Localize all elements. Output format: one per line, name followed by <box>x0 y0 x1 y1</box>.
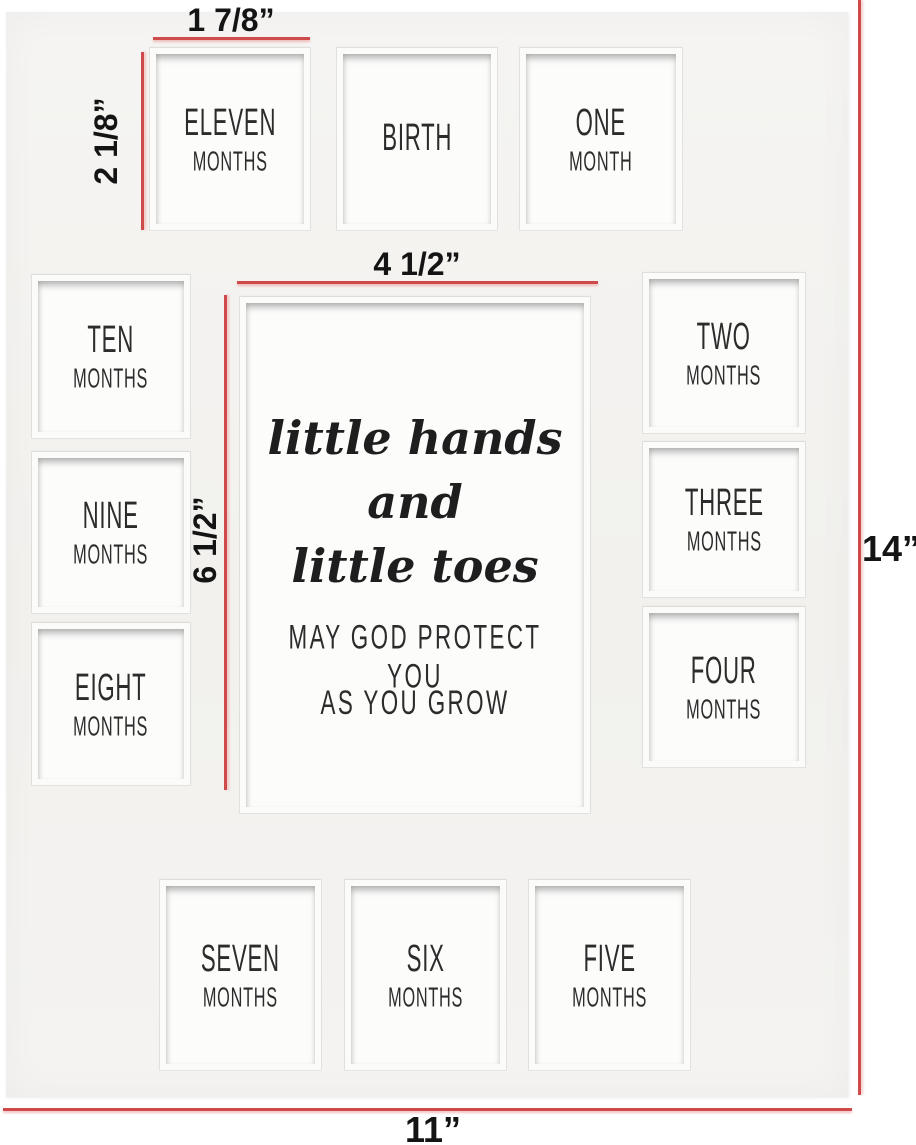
opening-label: TWO MONTHS <box>687 316 762 390</box>
opening-label: ELEVEN MONTHS <box>184 102 276 176</box>
photo-opening-nine-months: NINE MONTHS <box>32 452 190 613</box>
dimension-label-center-opening-height: 6 1/2” <box>185 455 225 625</box>
opening-label-line2: MONTHS <box>184 146 276 176</box>
opening-label-line1: THREE <box>685 482 764 525</box>
dimension-label-overall-height: 14” <box>862 528 916 570</box>
photo-opening-three-months: THREE MONTHS <box>643 442 805 597</box>
opening-label-line1: SEVEN <box>201 938 280 981</box>
opening-label-line2: MONTHS <box>572 982 647 1012</box>
opening-label-line2: MONTHS <box>388 982 463 1012</box>
photo-opening-ten-months: TEN MONTHS <box>32 275 190 438</box>
milestone-photo-mat-diagram: ELEVEN MONTHS BIRTH ONE MONTH TEN MONTHS… <box>0 0 916 1145</box>
opening-label: ONE MONTH <box>569 102 632 176</box>
photo-opening-seven-months: SEVEN MONTHS <box>160 880 321 1070</box>
opening-label-line1: ELEVEN <box>184 102 276 145</box>
photo-opening-five-months: FIVE MONTHS <box>529 880 690 1070</box>
dimension-label-center-opening-width: 4 1/2” <box>337 246 497 283</box>
opening-label-line2: MONTHS <box>74 711 149 741</box>
dimension-label-small-opening-height: 2 1/8” <box>86 56 126 226</box>
opening-label: TEN MONTHS <box>74 319 149 393</box>
opening-label: FOUR MONTHS <box>687 650 762 724</box>
opening-label-line1: EIGHT <box>74 667 149 710</box>
opening-label: SIX MONTHS <box>388 938 463 1012</box>
opening-label-line1: FIVE <box>572 938 647 981</box>
dimension-line-overall-height <box>858 0 861 1095</box>
dimension-line-small-opening-height <box>141 52 144 230</box>
opening-label: FIVE MONTHS <box>572 938 647 1012</box>
photo-opening-eleven-months: ELEVEN MONTHS <box>150 48 310 230</box>
quote-script-line2: and <box>246 475 584 529</box>
photo-opening-four-months: FOUR MONTHS <box>643 607 805 767</box>
quote-script-line3: little toes <box>246 539 584 593</box>
opening-label-line2: MONTHS <box>74 363 149 393</box>
opening-label: SEVEN MONTHS <box>201 938 280 1012</box>
quote-caption-line2: AS YOU GROW <box>280 683 550 722</box>
opening-label-line2: MONTHS <box>687 360 762 390</box>
opening-label-line1: FOUR <box>687 650 762 693</box>
opening-label-line1: ONE <box>569 102 632 145</box>
opening-label: NINE MONTHS <box>74 495 149 569</box>
photo-opening-eight-months: EIGHT MONTHS <box>32 623 190 785</box>
opening-label: THREE MONTHS <box>685 482 764 556</box>
opening-label-line1: TWO <box>687 316 762 359</box>
opening-label-line2: MONTH <box>569 146 632 176</box>
opening-label-line2: MONTHS <box>687 694 762 724</box>
photo-opening-six-months: SIX MONTHS <box>345 880 506 1070</box>
photo-opening-one-month: ONE MONTH <box>520 48 682 230</box>
opening-label-line1: SIX <box>388 938 463 981</box>
opening-label-line2: MONTHS <box>74 539 149 569</box>
quote-script-line1: little hands <box>246 411 584 465</box>
photo-opening-birth: BIRTH <box>337 48 497 230</box>
opening-label-line2: MONTHS <box>685 526 764 556</box>
opening-label-line1: BIRTH <box>382 117 452 160</box>
center-quote-opening: little hands and little toes MAY GOD PRO… <box>240 297 590 813</box>
opening-label: BIRTH <box>382 117 452 161</box>
dimension-label-small-opening-width: 1 7/8” <box>151 2 311 39</box>
opening-label-line1: TEN <box>74 319 149 362</box>
opening-label-line1: NINE <box>74 495 149 538</box>
opening-label: EIGHT MONTHS <box>74 667 149 741</box>
opening-label-line2: MONTHS <box>201 982 280 1012</box>
dimension-label-overall-width: 11” <box>353 1109 513 1145</box>
photo-opening-two-months: TWO MONTHS <box>643 273 805 433</box>
